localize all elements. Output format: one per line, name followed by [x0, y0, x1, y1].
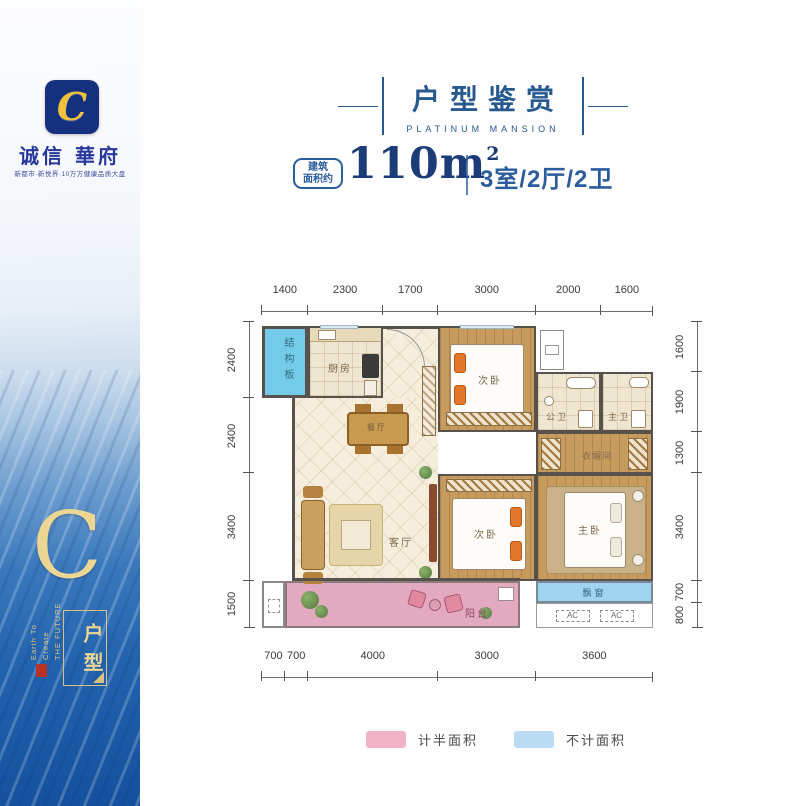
dimension-segment: 1600	[601, 284, 653, 312]
room-bath-guest: 公卫	[536, 372, 601, 432]
dimension-label: 700	[674, 583, 686, 601]
area-badge-line1: 建筑	[308, 162, 328, 174]
room-label: 次卧	[478, 372, 502, 387]
title-left-bar	[382, 77, 384, 135]
area-badge: 建筑 面积约	[293, 158, 343, 189]
dining-chair	[355, 404, 371, 412]
unit-letter: C	[32, 500, 102, 592]
room-structure-slab: 结构板	[262, 326, 308, 398]
pillow	[610, 503, 622, 523]
dimension-segment: 700	[285, 650, 308, 678]
dimension-segment: 2400	[216, 398, 250, 474]
ac-unit: AC	[556, 610, 590, 622]
room-label: 厨房	[328, 360, 352, 375]
dimension-ruler-right: 1600190013003400700800	[664, 322, 698, 628]
dimension-segment: 3400	[664, 473, 698, 580]
balcony-table	[429, 599, 441, 611]
dimension-label: 2000	[556, 284, 580, 296]
dining-chair	[355, 446, 371, 454]
dimension-label: 2400	[226, 423, 238, 447]
wall-segment	[292, 398, 295, 581]
room-bath-master: 主卫	[601, 372, 653, 432]
room-bedroom-secondary-mid: 次卧	[438, 474, 536, 581]
kitchen-window	[320, 325, 358, 329]
platform-unit	[545, 345, 559, 355]
sink	[629, 377, 649, 388]
dimension-segment: 3400	[216, 473, 250, 580]
laundry-unit	[498, 587, 514, 601]
room-label: 餐厅	[367, 422, 387, 433]
room-master-bedroom: 主卧	[536, 474, 653, 581]
room-label: 主卫	[608, 410, 630, 423]
unit-english-line2: THE FUTURE	[53, 603, 62, 661]
page-subtitle: PLATINUM MANSION	[402, 124, 564, 134]
area-number: 110	[347, 139, 440, 189]
dimension-label: 1900	[674, 390, 686, 414]
dimension-segment: 1300	[664, 432, 698, 473]
unit-type-box: 户型	[63, 610, 107, 686]
legend-swatch-pink	[366, 731, 406, 748]
logo-letter: C	[57, 88, 87, 126]
dimension-label: 1300	[674, 441, 686, 465]
balcony-chair	[443, 593, 464, 614]
dimension-segment: 2400	[216, 322, 250, 398]
plant	[315, 605, 328, 618]
summary-divider	[466, 155, 468, 195]
legend: 计半面积 不计面积	[366, 730, 626, 749]
dimension-label: 1600	[615, 284, 639, 296]
dimension-segment: 3000	[438, 650, 536, 678]
bay-window: 飘窗	[536, 581, 653, 603]
nightstand	[632, 554, 644, 566]
dimension-label: 1600	[674, 335, 686, 359]
room-closet: 衣帽间	[536, 432, 653, 474]
ac-unit-outline	[268, 599, 280, 613]
room-label: 衣帽间	[582, 449, 612, 462]
kitchen-cabinet	[364, 380, 377, 396]
dimension-ruler-bottom: 700700400030003600	[262, 650, 653, 678]
brand-sidebar: C 诚信 華府 新都市·新悦界·10万方健康品质大盘 C Earth To Cr…	[0, 0, 140, 806]
dimension-segment: 1400	[262, 284, 308, 312]
ac-platform-strip: AC AC	[536, 603, 653, 628]
title-right-line	[588, 106, 628, 107]
bedroom-window	[460, 325, 514, 329]
sofa	[301, 500, 325, 570]
room-label: 主卧	[578, 522, 602, 537]
dimension-segment: 1900	[664, 372, 698, 432]
dimension-label: 3000	[475, 650, 499, 662]
dimension-label: 3400	[226, 515, 238, 539]
area-value: 110m2	[347, 143, 501, 186]
hallway-cabinet	[422, 366, 436, 436]
dimension-label: 3600	[582, 650, 606, 662]
wardrobe	[446, 412, 532, 426]
dimension-segment: 1700	[383, 284, 438, 312]
dining-chair	[387, 404, 403, 412]
room-living-dining: 餐厅 客厅	[295, 398, 438, 581]
dimension-label: 700	[287, 650, 305, 662]
wardrobe	[541, 438, 561, 470]
dimension-label: 3000	[475, 284, 499, 296]
dimension-label: 1700	[398, 284, 422, 296]
room-label: 阳台	[465, 605, 489, 620]
dining-chair	[387, 446, 403, 454]
nightstand	[632, 490, 644, 502]
red-seal-stamp	[36, 664, 47, 677]
pillow	[610, 537, 622, 557]
legend-label: 计半面积	[418, 730, 478, 749]
brand-logo: C	[45, 80, 99, 134]
floor-plan: 结构板 厨房 次卧	[262, 322, 653, 628]
armchair	[303, 486, 323, 498]
bathtub	[566, 377, 596, 389]
brand-tagline: 新都市·新悦界·10万方健康品质大盘	[0, 168, 140, 178]
pillow	[454, 385, 466, 405]
dimension-segment: 700	[664, 581, 698, 603]
dimension-label: 800	[674, 606, 686, 624]
title-right-bar	[582, 77, 584, 135]
unit-english-line1: Earth To Create	[29, 624, 50, 660]
dimension-label: 1400	[273, 284, 297, 296]
toilet	[631, 410, 646, 428]
entry-door-arc	[387, 329, 425, 367]
dimension-segment: 1500	[216, 581, 250, 628]
dimension-segment: 800	[664, 603, 698, 628]
coffee-table	[341, 520, 371, 550]
room-label: 公卫	[546, 410, 568, 423]
room-spec: 3室/2厅/2卫	[480, 159, 613, 194]
tv-cabinet	[429, 484, 437, 562]
dimension-segment: 3000	[438, 284, 536, 312]
dimension-segment: 2000	[536, 284, 601, 312]
area-badge-line2: 面积约	[303, 174, 333, 186]
title-left-line	[338, 106, 378, 107]
dimension-label: 3400	[674, 515, 686, 539]
pillow	[510, 541, 522, 561]
kitchen-sink	[318, 330, 336, 340]
balcony-chair	[407, 589, 427, 609]
plant	[419, 466, 432, 479]
wardrobe	[446, 479, 532, 492]
dimension-ruler-left: 2400240034001500	[216, 322, 250, 628]
dimension-segment: 1600	[664, 322, 698, 372]
pillow	[510, 507, 522, 527]
wardrobe	[628, 438, 648, 470]
sink	[544, 396, 554, 406]
kitchen-stove	[362, 354, 379, 378]
ac-unit: AC	[600, 610, 634, 622]
balcony-side-platform	[262, 581, 285, 628]
room-bedroom-secondary-top: 次卧	[438, 326, 536, 432]
poster-page: C 诚信 華府 新都市·新悦界·10万方健康品质大盘 C Earth To Cr…	[0, 0, 800, 806]
dimension-label: 2300	[333, 284, 357, 296]
page-title-block: 户型鉴赏 PLATINUM MANSION	[318, 74, 648, 138]
legend-swatch-blue	[514, 731, 554, 748]
utility-platform	[540, 330, 564, 370]
room-label: 飘窗	[582, 586, 606, 599]
brand-name: 诚信 華府	[0, 140, 140, 169]
corner-fold-decoration	[93, 672, 104, 683]
room-label: 结构板	[280, 337, 295, 385]
unit-english-caption: Earth To Create THE FUTURE	[28, 598, 64, 660]
dimension-segment: 3600	[536, 650, 653, 678]
pillow	[454, 353, 466, 373]
dimension-segment: 700	[262, 650, 285, 678]
room-kitchen: 厨房	[308, 326, 383, 398]
dimension-ruler-top: 140023001700300020001600	[262, 284, 653, 312]
room-label: 客厅	[389, 534, 413, 549]
dimension-segment: 2300	[308, 284, 383, 312]
dimension-label: 1500	[226, 592, 238, 616]
room-label: 次卧	[474, 526, 498, 541]
dimension-label: 4000	[361, 650, 385, 662]
dimension-label: 2400	[226, 348, 238, 372]
wall-segment	[292, 578, 520, 581]
legend-item-half-area: 计半面积	[366, 730, 478, 749]
page-title: 户型鉴赏	[402, 78, 564, 118]
room-balcony: 阳台	[285, 581, 520, 628]
dimension-segment: 4000	[308, 650, 438, 678]
toilet	[578, 410, 593, 428]
legend-label: 不计面积	[566, 730, 626, 749]
dimension-label: 700	[264, 650, 282, 662]
legend-item-excluded-area: 不计面积	[514, 730, 626, 749]
